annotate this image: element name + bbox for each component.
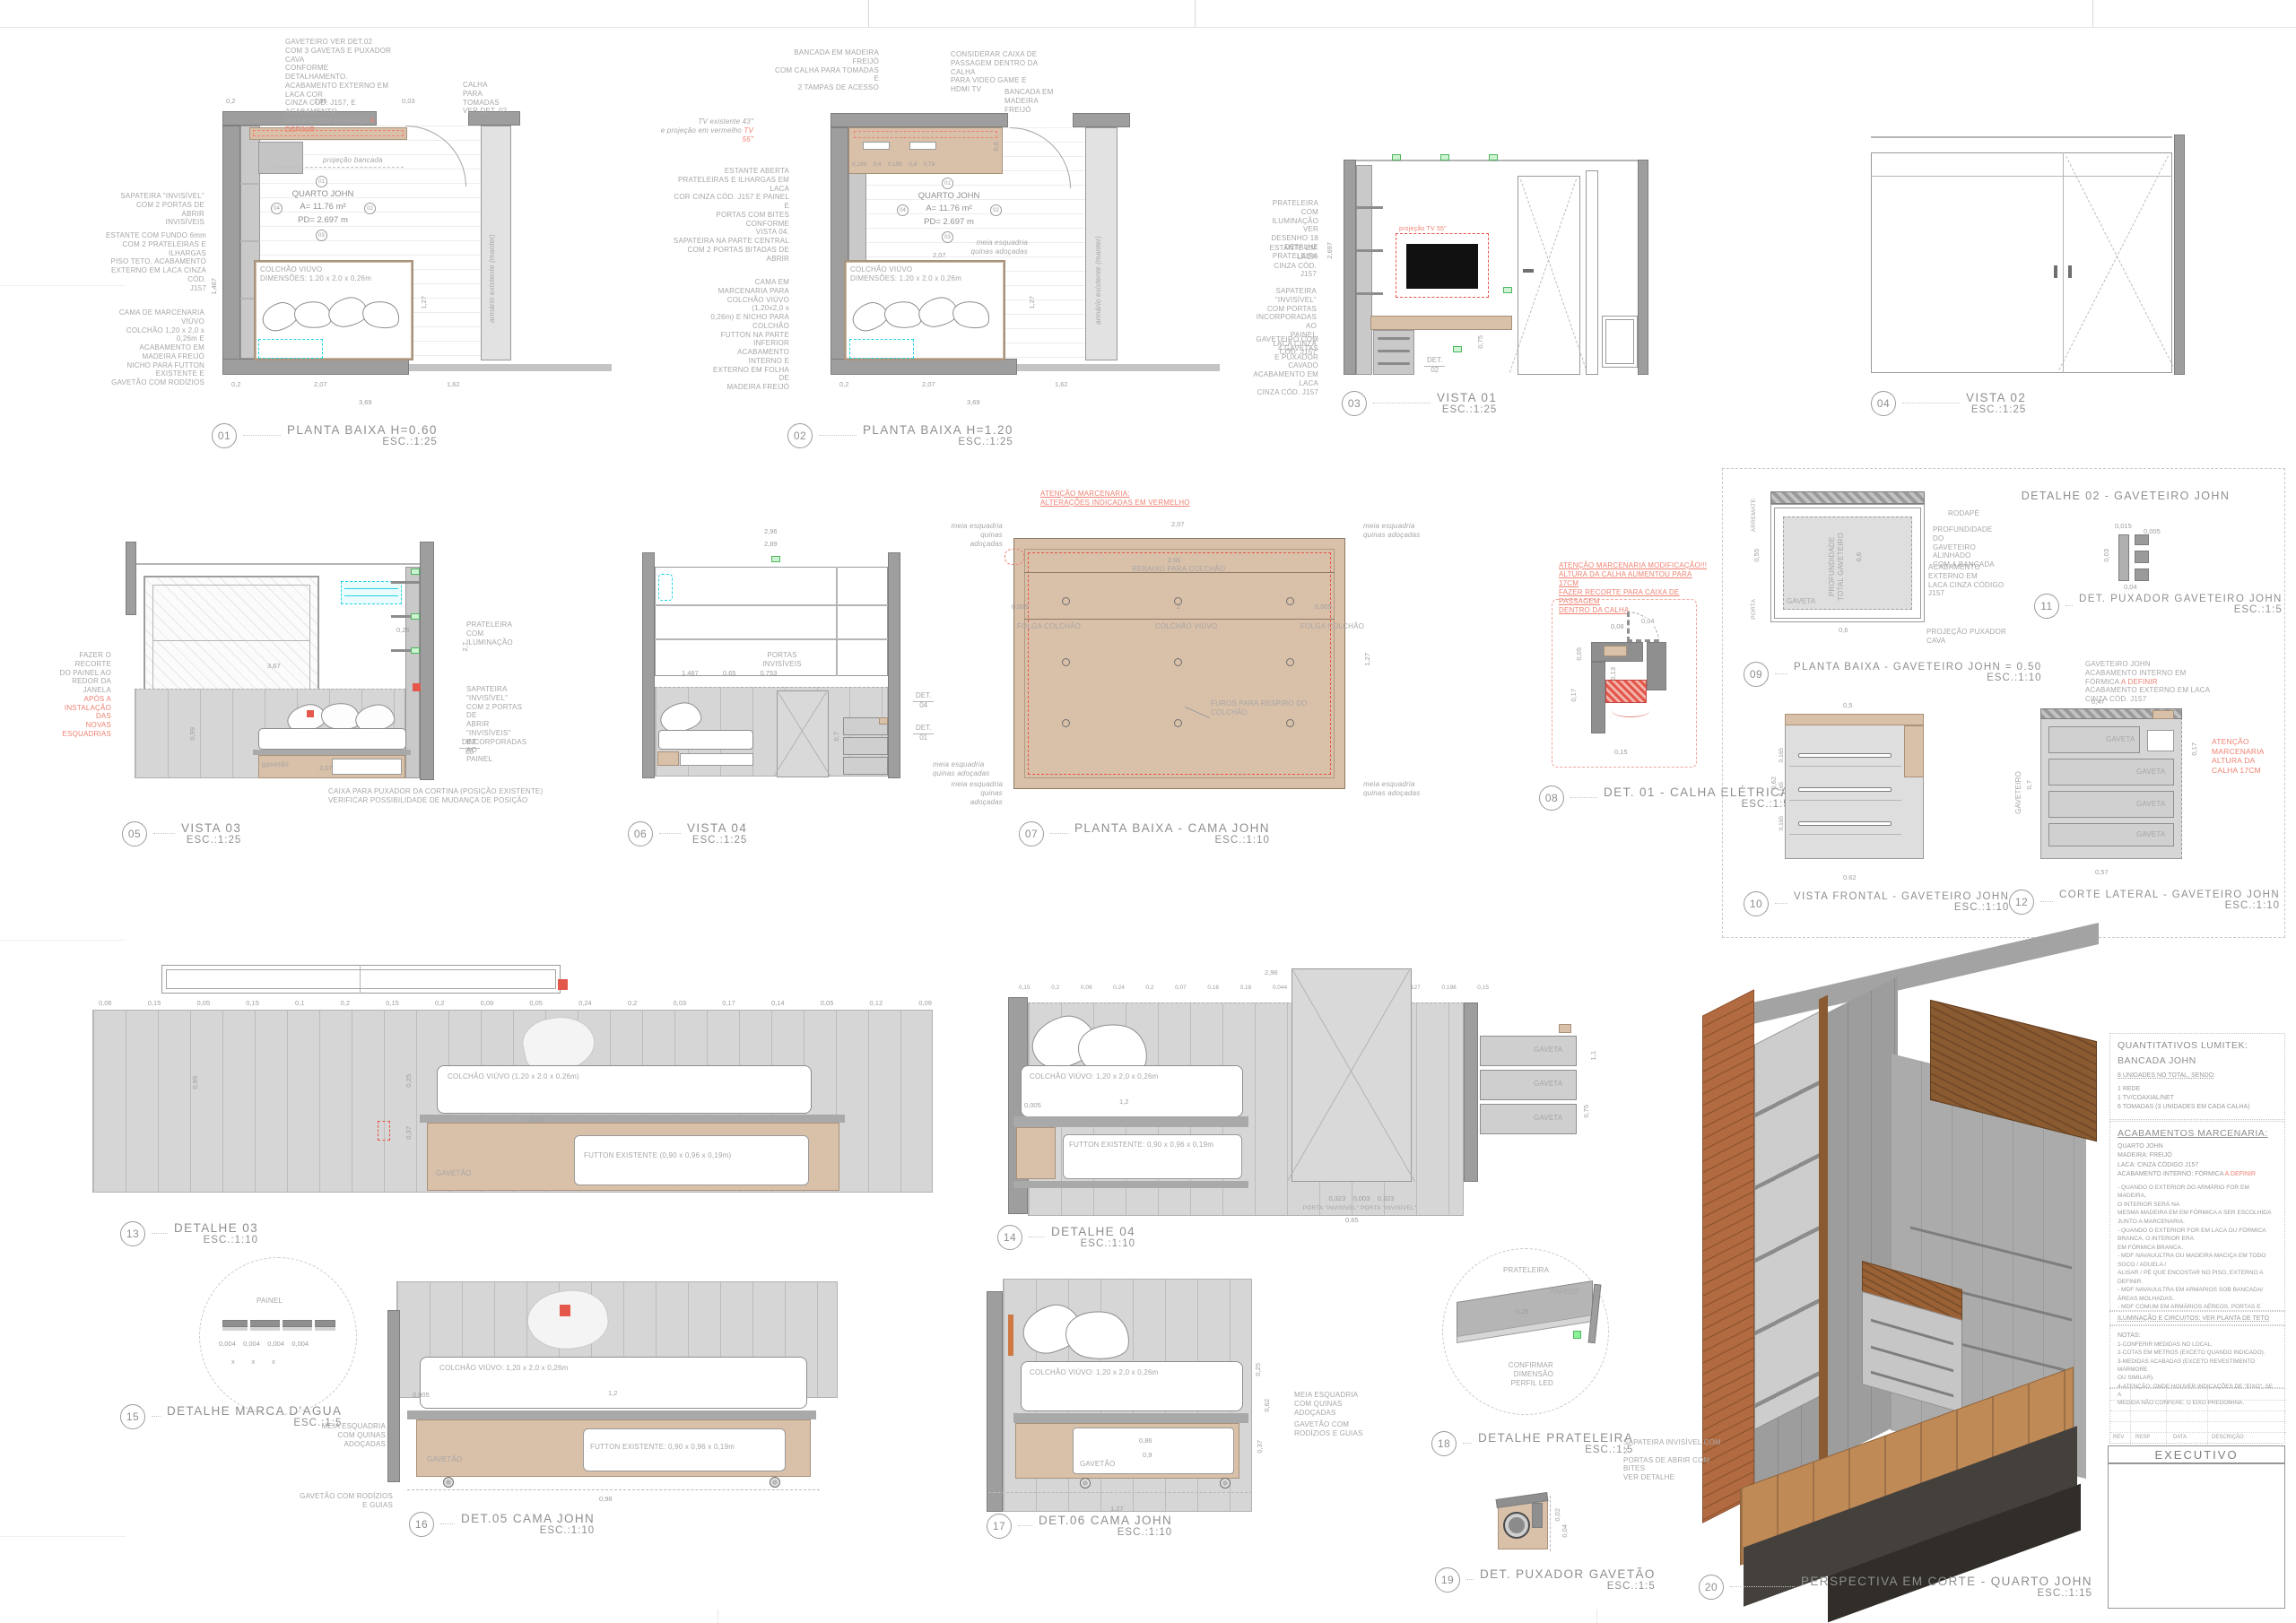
section-wall: [1647, 642, 1666, 690]
caption-scale: ESC.:1:5: [2234, 604, 2283, 615]
drawer-line: [1789, 766, 1901, 767]
section-wall: [1591, 662, 1605, 733]
plan-dash: [1783, 516, 1912, 610]
caption-number: 07: [1019, 821, 1044, 846]
drawing-05-scene: gavetão 3,67 2,07 0,99 0,25 2,7 DET.03: [117, 534, 493, 803]
painel-label: PAINEL: [257, 1297, 283, 1306]
detail-circle: [199, 1257, 357, 1415]
meia-esquadria-label: meia esquadria quinas adoçadas: [949, 780, 1003, 806]
caption-title: DET. PUXADOR GAVETEIRO JOHN: [2079, 594, 2283, 604]
caption-scale: ESC.:1:5: [1607, 1581, 1656, 1592]
leader: [1018, 1525, 1032, 1526]
caster-wheel: [1220, 1478, 1231, 1488]
trim-tick: [2092, 0, 2093, 27]
dim-label: 1,2: [608, 1389, 617, 1397]
caption-scale: ESC.:1:25: [1442, 404, 1497, 415]
caption-number: 08: [1539, 785, 1564, 811]
bed-base: [1013, 1181, 1248, 1188]
caption-number: 03: [1342, 391, 1367, 416]
futton-label: FUTTON EXISTENTE (0,90 x 0,96 x 0,19m): [584, 1151, 731, 1160]
shelf-tick: [1356, 206, 1383, 209]
dim-label: 3,69: [967, 398, 980, 406]
annotation: CALHA PARA TOMADAS VER DET. 02: [463, 81, 520, 116]
gavetao-label: GAVETÃO: [427, 1455, 462, 1464]
colchao-label: COLCHÃO VIÚVO DIMENSÕES: 1.20 x 2.0 x 0,…: [850, 265, 967, 283]
dim-label: 1,04: [530, 1115, 544, 1124]
door-handle: [2068, 265, 2072, 278]
top-band: [1770, 491, 1925, 504]
dim-label: 0,04: [1561, 1524, 1569, 1538]
caption-number: 05: [122, 821, 147, 846]
leader: [1730, 1586, 1795, 1587]
dim-label: 0,05: [1575, 647, 1583, 661]
drawing-20-scene: [1695, 950, 2108, 1578]
gavetao-label: gavetão: [262, 760, 289, 769]
dim-label: 0,02: [1553, 1508, 1561, 1522]
prateleira-label: PRATELEIRA: [1503, 1266, 1549, 1275]
caption-scale: ESC.:1:10: [2225, 900, 2280, 911]
caption-11: 11 DET. PUXADOR GAVETEIRO JOHNESC.:1:5: [2034, 594, 2283, 619]
trim-tick: [1195, 0, 1196, 27]
dim-label: 0,7: [2025, 780, 2033, 789]
leader: [1463, 1443, 1472, 1444]
leader: [2066, 605, 2073, 606]
caption-18: 18 DETALHE PRATELEIRAESC.:1:5: [1431, 1431, 1633, 1456]
gaveteiro-plan: [258, 142, 303, 174]
caption-title: DET. PUXADOR GAVETÃO: [1480, 1567, 1656, 1581]
furos-label: FUROS PARA RESPIRO DO COLCHÃO: [1211, 699, 1318, 717]
tampa-acesso: [909, 142, 936, 150]
marker-green: [1392, 154, 1401, 161]
wall: [2174, 135, 2185, 375]
trim-tick: [868, 0, 869, 27]
dim-label: 0,25: [396, 626, 410, 634]
dim-label: 3,67: [267, 662, 281, 670]
wall: [1638, 160, 1648, 375]
drawing-16-scene: COLCHÃO VIÚVO: 1,20 x 2,0 x 0,26m 0,005 …: [384, 1278, 850, 1506]
puxador-part: [2135, 534, 2149, 545]
window-inner: [152, 585, 310, 698]
annotation: ESTANTE ABERTA PRATELEIRAS E ILHARGAS EM…: [673, 167, 789, 263]
caption-06: 06 VISTA 04ESC.:1:25: [628, 821, 747, 846]
cyan-marker-box: [849, 339, 914, 359]
painel-section: [222, 1320, 335, 1327]
annotation: BANCADA EM MADEIRA FREIJÓ COM CALHA PARA…: [770, 48, 879, 92]
caster-wheel: [443, 1477, 454, 1488]
drawing-18-scene: PRATELEIRA PAREDE 0,25 CONFIRMAR DIMENSÃ…: [1442, 1248, 1613, 1419]
dash-edge: [1550, 1496, 1551, 1551]
view-marker: 03: [316, 230, 327, 241]
caption-number: 02: [787, 423, 813, 448]
porta-label: PORTA: [1751, 599, 1758, 620]
drawer-handle: [1798, 787, 1892, 792]
caption-title: DETALHE PRATELEIRA: [1478, 1431, 1633, 1445]
annotation: BANCADA EM MADEIRA FREIJÓ: [1004, 88, 1076, 114]
dim-label: 0,37: [404, 1126, 413, 1140]
shelf-tick: [391, 581, 420, 584]
annotation: SAPATEIRA "INVISÍVEL" COM 2 PORTAS DE AB…: [466, 685, 535, 764]
dim-label: 0,75: [1476, 335, 1484, 349]
futton-label: FUTTON EXISTENTE: 0,90 x 0,96 x 0,19m: [590, 1443, 735, 1452]
dim-label: 0,005: [413, 1391, 430, 1399]
caption-scale: ESC.:1:10: [204, 1235, 258, 1245]
acabamentos-title: ACABAMENTOS MARCENARIA:: [2118, 1127, 2277, 1141]
arremate-label: ARREMATE: [1751, 499, 1758, 532]
drawer-handle: [1378, 350, 1410, 352]
bed-ledge: [420, 1115, 845, 1123]
window-sill: [161, 965, 561, 994]
caption-number: 14: [997, 1225, 1022, 1250]
dim-label: 0,005: [1315, 603, 1332, 611]
room-label: QUARTO JOHNA= 11.76 m²PD= 2.697 m: [269, 188, 377, 227]
bracket: [1532, 1503, 1543, 1528]
caption-title: CORTE LATERAL - GAVETEIRO JOHN: [2059, 890, 2280, 900]
executivo-label: EXECUTIVO: [2154, 1448, 2238, 1462]
caption-number: 20: [1699, 1575, 1724, 1600]
rev-col-line: [2130, 1389, 2131, 1445]
gaveta-label: GAVETA: [1787, 597, 1815, 606]
rev-row-line: [2110, 1421, 2286, 1422]
caption-number: 12: [2009, 890, 2034, 915]
wall: [222, 126, 240, 375]
vent-hole: [1286, 658, 1294, 666]
dim-label: 0,13: [1609, 667, 1617, 681]
dim-label: 2,89: [764, 540, 778, 548]
tv-screen: [1406, 244, 1478, 289]
drawing-17-scene: COLCHÃO VIÚVO: 1,20 x 2,0 x 0,26m GAVETÃ…: [979, 1273, 1266, 1515]
annotation: ACABAMENTO EXTERNO EM LACA CINZA CÓDIGO …: [1928, 563, 2011, 598]
mattress: [658, 730, 753, 750]
caption-number: 01: [212, 423, 237, 448]
notas-box: NOTAS: 1-CONFERIR MEDIDAS NO LOCAL. 2-CO…: [2109, 1325, 2285, 1388]
door-handle: [1523, 269, 1534, 273]
bed-ledge: [1013, 1413, 1248, 1423]
annotation: GAVETÃO COM RODÍZIOS E GUIAS: [1294, 1420, 1366, 1438]
shelf-tick: [1356, 292, 1383, 295]
det-01-marker: DET.01: [913, 725, 934, 742]
wall: [222, 359, 409, 375]
cyan-marker-box: [258, 339, 323, 359]
annotation-red: ATENÇÃO MARCENARIA: ALTERAÇÕES INDICADAS…: [1040, 490, 1274, 508]
marker-green: [411, 568, 420, 575]
dim-label: 0,08: [1611, 622, 1624, 630]
view-marker: 04: [897, 204, 909, 216]
floor-dash: [988, 1492, 1252, 1493]
annotation: PROJEÇÃO PUXADOR CAVA: [1926, 628, 2009, 646]
dim-row: 0,323 0,003 0,323: [1299, 1194, 1424, 1202]
iluminacao-bar: ILUMINAÇÃO E CIRCUITOS: VER PLANTA DE TE…: [2109, 1311, 2285, 1325]
dim-label: 0,75: [1582, 1105, 1590, 1118]
dim-label: 1,2: [1119, 1098, 1128, 1106]
dim-label: 3,69: [359, 398, 372, 406]
view-marker: 01: [316, 176, 327, 187]
resp-header: RESP: [2135, 1435, 2150, 1440]
caption-number: 11: [2034, 594, 2059, 619]
wardrobe-outline: [1871, 152, 2172, 373]
dim-label: 2,07: [1171, 520, 1185, 528]
side-panel: [1586, 170, 1598, 375]
orange-strip: [1008, 1315, 1013, 1356]
caption-02: 02 PLANTA BAIXA H=1.20ESC.:1:25: [787, 423, 1013, 448]
det-02-marker: DET.02: [1424, 357, 1445, 375]
gavetao-label: GAVETÃO: [436, 1169, 471, 1178]
floor-dash: [407, 1489, 820, 1490]
caption-number: 17: [987, 1514, 1012, 1539]
rev-row-line: [2110, 1410, 2286, 1411]
dim-label: 1,62: [447, 380, 460, 388]
drawing-08-scene: 0,05 0,17 0,13 0,08 0,04 0,15: [1552, 595, 1704, 770]
leader: [1570, 797, 1597, 798]
vent-hole: [1062, 658, 1070, 666]
caption-04: 04 VISTA 02ESC.:1:25: [1871, 391, 2026, 416]
leader: [440, 1523, 455, 1524]
top-line: [1871, 136, 2172, 138]
wall: [1464, 1002, 1478, 1182]
dim-label: 2,96: [1265, 968, 1278, 976]
wall: [1073, 113, 1130, 127]
rev-col-line: [2166, 1389, 2167, 1445]
annotation: CAMA DE MARCENARIA VIÚVO COLCHÃO 1,20 x …: [104, 308, 204, 387]
drawer: [843, 757, 888, 775]
sill-divider: [360, 965, 361, 994]
caption-number: 19: [1435, 1567, 1460, 1593]
dim-label: 0,99: [188, 727, 196, 741]
dim-label: 0,57: [2095, 868, 2109, 876]
dim-label: 0,015: [2115, 522, 2132, 530]
annotation: FAZER O RECORTE DO PAINEL AO REDOR DA JA…: [52, 651, 111, 739]
marker-green: [411, 647, 420, 654]
dim-label: 0,2: [839, 380, 848, 388]
folga-label: FOLGA COLCHÃO: [1017, 622, 1081, 631]
caption-number: 09: [1744, 662, 1769, 687]
colchao-label: COLCHÃO VIÚVO: 1,20 x 2,0 x 0,26m: [439, 1364, 569, 1373]
annotation: GAVETÃO COM RODÍZIOS E GUIAS: [296, 1492, 393, 1510]
shelf-line: [655, 604, 888, 606]
dim-label: 0,62: [1843, 873, 1857, 881]
dim-label: 1,27: [1028, 296, 1036, 309]
caption-09: 09 PLANTA BAIXA - GAVETEIRO JOHN = 0.50E…: [1744, 662, 2042, 687]
shelf-column: [405, 567, 420, 778]
dim-label: 2,07: [319, 764, 333, 772]
dim-label: 0,165: [1779, 816, 1785, 830]
drawing-06-scene: 2,96 2,89 PORTAS INVISÍVEIS 1,487 0,65 0…: [628, 525, 987, 794]
annotation: MEIA ESQUADRIA COM QUINAS ADOÇADAS: [1294, 1391, 1375, 1417]
marker-green: [1503, 287, 1512, 293]
vent-hole: [1286, 597, 1294, 605]
joint-tick: [312, 1318, 315, 1331]
bed-base: [657, 751, 679, 766]
detail-box-title: DETALHE 02 - GAVETEIRO JOHN: [1987, 490, 2265, 502]
dim-label: 0,7: [832, 732, 840, 741]
wheel-large: [1503, 1512, 1530, 1539]
dim-label: 0,65: [1345, 1216, 1359, 1224]
gaveta-label: GAVETA: [2106, 735, 2135, 744]
dim-label: 1,1: [1589, 1051, 1597, 1060]
rebaixo-label: REBAIXO PARA COLCHÃO: [1132, 565, 1225, 574]
caption-03: 03 VISTA 01ESC.:1:25: [1342, 391, 1497, 416]
quantitativos-subtitle: BANCADA JOHN: [2118, 1055, 2277, 1068]
caption-19: 19 DET. PUXADOR GAVETÃOESC.:1:5: [1435, 1567, 1656, 1593]
red-scribble: [1004, 549, 1024, 565]
mattress: [258, 728, 406, 750]
dim-label: 2.01: [1168, 556, 1181, 564]
meia-esquadria-label: meia esquadria quinas adoçadas: [1363, 780, 1433, 798]
caption-title: DETALHE 04: [1051, 1225, 1135, 1238]
wall: [888, 552, 900, 778]
caption-scale: ESC.:1:10: [1987, 673, 2041, 683]
caption-number: 15: [120, 1404, 145, 1429]
drawer-handle: [1378, 337, 1410, 340]
drawing-15-scene: PAINEL 0,004 0,004 0,004 0,004 x x x: [199, 1257, 361, 1419]
portas-invisiveis-label: PORTAS INVISÍVEIS: [755, 651, 809, 669]
calha-tick: [1559, 1024, 1571, 1033]
quantitativos-line: 8 UNIDADES NO TOTAL, SENDO:: [2118, 1072, 2277, 1081]
caption-scale: ESC.:1:25: [958, 437, 1013, 447]
caption-12: 12 CORTE LATERAL - GAVETEIRO JOHNESC.:1:…: [2009, 890, 2280, 915]
gaveta-label: GAVETA: [1534, 1114, 1562, 1123]
acabamentos-red: A DEFINIR: [2225, 1171, 2256, 1177]
data-header: DATA: [2173, 1435, 2187, 1440]
leader: [243, 435, 281, 436]
wall: [1344, 160, 1356, 375]
led-marker: [1573, 1331, 1581, 1339]
annotation: RODAPÉ: [1948, 509, 1979, 518]
caption-scale: ESC.:1:10: [1954, 902, 2009, 913]
bancada-elevation: [1370, 316, 1512, 330]
armario-label: armário existente (manter): [1094, 163, 1103, 325]
drawer: [843, 737, 888, 755]
caption-20: 20 PERSPECTIVA EM CORTE - QUARTO JOHNESC…: [1699, 1575, 2092, 1600]
dim-label: 0,98: [599, 1495, 613, 1503]
dim-label: 0,03: [402, 97, 415, 105]
drawer-line: [1789, 834, 1901, 835]
dim-label: 2,96: [764, 527, 778, 535]
door-handle: [2054, 265, 2057, 278]
caption-title: DETALHE 03: [174, 1221, 258, 1235]
caption-title: PERSPECTIVA EM CORTE - QUARTO JOHN: [1801, 1575, 2092, 1588]
dim-label: 0,17: [1570, 689, 1578, 702]
dim-label: 0,17: [2190, 742, 2198, 756]
caption-number: 18: [1431, 1431, 1457, 1456]
x-row: x x x: [231, 1358, 339, 1366]
annotation: PRATELEIRA COM ILUMINAÇÃO: [466, 621, 531, 647]
calha-tan: [2152, 710, 2174, 719]
dim-label: 1,27: [1363, 653, 1371, 666]
fold-mark: [1596, 1610, 1597, 1623]
dim-label: 0,04: [2124, 583, 2137, 591]
dim-row: 0,195 0,4 0,195 0,4 0,79: [852, 161, 1001, 168]
wall: [387, 1310, 400, 1482]
cyan-shelf-line: [344, 595, 398, 596]
leader: [1775, 903, 1787, 904]
caption-scale: ESC.:1:10: [540, 1525, 595, 1536]
leader: [152, 1233, 168, 1234]
tv-projection-label: projeção TV 55": [1399, 226, 1447, 234]
iluminacao-text: ILUMINAÇÃO E CIRCUITOS: VER PLANTA DE TE…: [2118, 1315, 2269, 1322]
caption-title: DET.06 CAMA JOHN: [1039, 1514, 1172, 1527]
dim-label: 0,5: [1843, 701, 1852, 709]
leader: [1775, 673, 1787, 674]
marker-green: [771, 556, 780, 562]
drawing-09-scene: PROFUNDIDADE TOTAL GAVETEIRO 0,6 GAVETA …: [1758, 491, 1937, 635]
annotation: SAPATEIRA INVISÍVEL COM 2 PORTAS DE ABRI…: [1623, 1438, 1722, 1482]
wall-thin: [409, 364, 612, 371]
revision-table: REV RESP DATA DESCRIÇÃO: [2109, 1388, 2285, 1444]
annotation: CAMA EM MARCENARIA PARA COLCHÃO VIÚVO (1…: [709, 278, 789, 392]
wall: [420, 542, 434, 780]
shelf-tick: [1356, 249, 1383, 252]
caption-title: PLANTA BAIXA - CAMA JOHN: [1074, 821, 1270, 835]
caption-number: 10: [1744, 891, 1769, 916]
dim-label: 0,37: [1256, 1440, 1264, 1454]
caption-title: DETALHE MARCA D'AGUA: [167, 1404, 342, 1418]
drawing-02-scene: 0,195 0,4 0,195 0,4 0,79 0,6 QUARTO JOHN…: [816, 90, 1139, 412]
calha-block: [1605, 680, 1647, 703]
annotation: TV existente 43" e projeção em vermelho …: [657, 117, 753, 143]
caption-scale: ESC.:1:25: [1971, 404, 2026, 415]
wall: [831, 359, 1017, 375]
shelf-tick: [240, 183, 260, 185]
caption-scale: ESC.:1:10: [1118, 1527, 1172, 1538]
bancada-top: [1785, 714, 1924, 725]
caption-title: VISTA FRONTAL - GAVETEIRO JOHN: [1794, 891, 2009, 902]
colchao-label: COLCHÃO VIÚVO (1.20 x 2.0 x 0.26m): [448, 1072, 579, 1081]
puxador-part: [2135, 551, 2149, 563]
drawing-07-scene: 2.01 REBAIXO PARA COLCHÃO 0,005 FOLGA CO…: [1004, 513, 1417, 809]
cyan-shelf: [341, 581, 402, 604]
dim-label: 0,6: [1839, 626, 1848, 634]
caption-scale: ESC.:1:25: [187, 835, 241, 846]
futton-box: [574, 1135, 809, 1185]
mirror-frame: [1602, 316, 1638, 368]
caption-14: 14 DETALHE 04ESC.:1:10: [997, 1225, 1135, 1250]
drawing-11-scene: 0,015 0,005 0,03 0,04: [2108, 524, 2170, 592]
dim-label: 0,03: [2102, 549, 2110, 562]
shelf-line: [655, 638, 888, 640]
marker-red: [560, 1305, 570, 1316]
calha-niche: [2147, 730, 2174, 751]
rev-row-line: [2110, 1432, 2286, 1433]
caption-title: VISTA 03: [181, 821, 241, 835]
caption-01: 01 PLANTA BAIXA H=0.60ESC.:1:25: [212, 423, 438, 448]
bed-side: [1016, 1127, 1056, 1179]
dim-label: 0,2: [231, 380, 240, 388]
gaveta-label: GAVETA: [1534, 1046, 1562, 1055]
quantitativos-box: QUANTITATIVOS LUMITEK: BANCADA JOHN 8 UN…: [2109, 1033, 2285, 1120]
tampa-acesso: [863, 142, 890, 150]
calha-tick: [879, 717, 888, 725]
meia-esquadria-label: meia esquadria quinas adoçadas: [1363, 522, 1433, 540]
caption-title: VISTA 04: [687, 821, 747, 835]
marker-red: [413, 683, 421, 691]
caption-number: 16: [409, 1512, 434, 1537]
proj-bancada-line: [269, 167, 404, 168]
trim-line: [0, 27, 2296, 28]
caption-title: PLANTA BAIXA - GAVETEIRO JOHN = 0.50: [1794, 662, 2042, 673]
marker-green: [1453, 346, 1462, 352]
dim-label: 0,6: [1855, 552, 1863, 561]
leader: [2040, 901, 2053, 902]
wood-frame-edge: [1819, 994, 1828, 1465]
dim-label: 0,25: [404, 1074, 413, 1088]
colchao-label: COLCHÃO VIÚVO: 1,20 x 2,0 x 0,26m: [1030, 1368, 1159, 1377]
caption-number: 06: [628, 821, 653, 846]
marker-red: [558, 979, 568, 990]
caption-17: 17 DET.06 CAMA JOHNESC.:1:10: [987, 1514, 1172, 1539]
door-elevation: [1518, 176, 1580, 375]
dim-label: 0,99: [191, 1076, 199, 1089]
caption-title: VISTA 01: [1437, 391, 1497, 404]
